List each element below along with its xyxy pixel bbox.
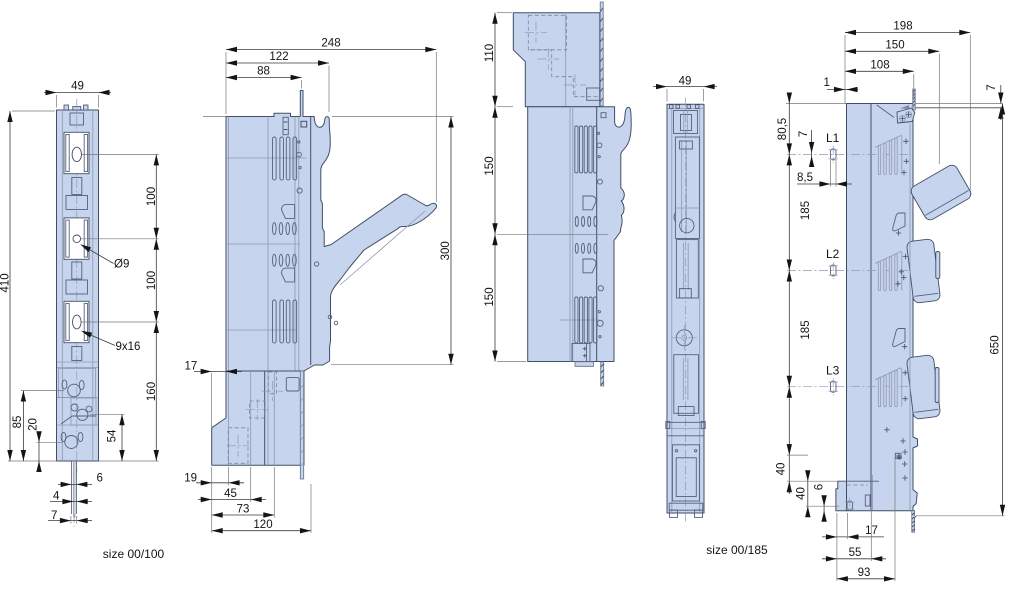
svg-text:100: 100 <box>146 187 158 206</box>
svg-text:120: 120 <box>253 519 272 531</box>
svg-text:7: 7 <box>986 84 998 90</box>
svg-text:L1: L1 <box>826 131 840 145</box>
svg-text:110: 110 <box>484 44 496 62</box>
svg-text:L2: L2 <box>826 247 840 261</box>
svg-text:248: 248 <box>321 38 340 50</box>
svg-text:185: 185 <box>800 320 812 339</box>
svg-text:7: 7 <box>51 510 57 522</box>
svg-text:17: 17 <box>185 360 198 372</box>
svg-text:80,5: 80,5 <box>777 118 789 140</box>
svg-text:122: 122 <box>269 51 288 63</box>
svg-text:1: 1 <box>824 77 830 89</box>
svg-text:Ø9: Ø9 <box>114 258 129 270</box>
svg-text:19: 19 <box>184 473 197 485</box>
svg-text:20: 20 <box>28 418 40 431</box>
svg-text:49: 49 <box>71 81 84 93</box>
svg-text:40: 40 <box>796 487 808 500</box>
svg-text:54: 54 <box>107 429 119 442</box>
svg-text:9x16: 9x16 <box>116 341 141 353</box>
svg-text:300: 300 <box>440 241 452 260</box>
svg-text:650: 650 <box>990 335 1002 354</box>
svg-text:6: 6 <box>97 473 103 485</box>
svg-text:160: 160 <box>146 382 158 401</box>
svg-text:85: 85 <box>12 416 24 429</box>
svg-text:49: 49 <box>679 75 692 87</box>
svg-text:100: 100 <box>146 271 158 290</box>
svg-text:93: 93 <box>858 567 871 579</box>
svg-text:150: 150 <box>484 287 496 306</box>
svg-text:8,5: 8,5 <box>797 172 813 184</box>
svg-text:150: 150 <box>484 156 496 175</box>
svg-text:4: 4 <box>53 491 60 503</box>
svg-text:size 00/185: size 00/185 <box>706 543 768 557</box>
svg-text:88: 88 <box>257 66 270 78</box>
svg-text:73: 73 <box>237 503 250 515</box>
svg-text:L3: L3 <box>826 363 840 377</box>
svg-text:410: 410 <box>0 273 12 292</box>
svg-text:6: 6 <box>814 484 826 490</box>
svg-text:40: 40 <box>776 463 788 476</box>
svg-text:185: 185 <box>800 201 812 220</box>
svg-text:55: 55 <box>849 547 862 559</box>
svg-text:150: 150 <box>885 40 904 52</box>
svg-text:45: 45 <box>224 488 237 500</box>
svg-text:7: 7 <box>798 131 810 137</box>
svg-text:198: 198 <box>893 21 912 33</box>
svg-text:size 00/100: size 00/100 <box>103 547 165 561</box>
svg-text:108: 108 <box>870 60 889 72</box>
